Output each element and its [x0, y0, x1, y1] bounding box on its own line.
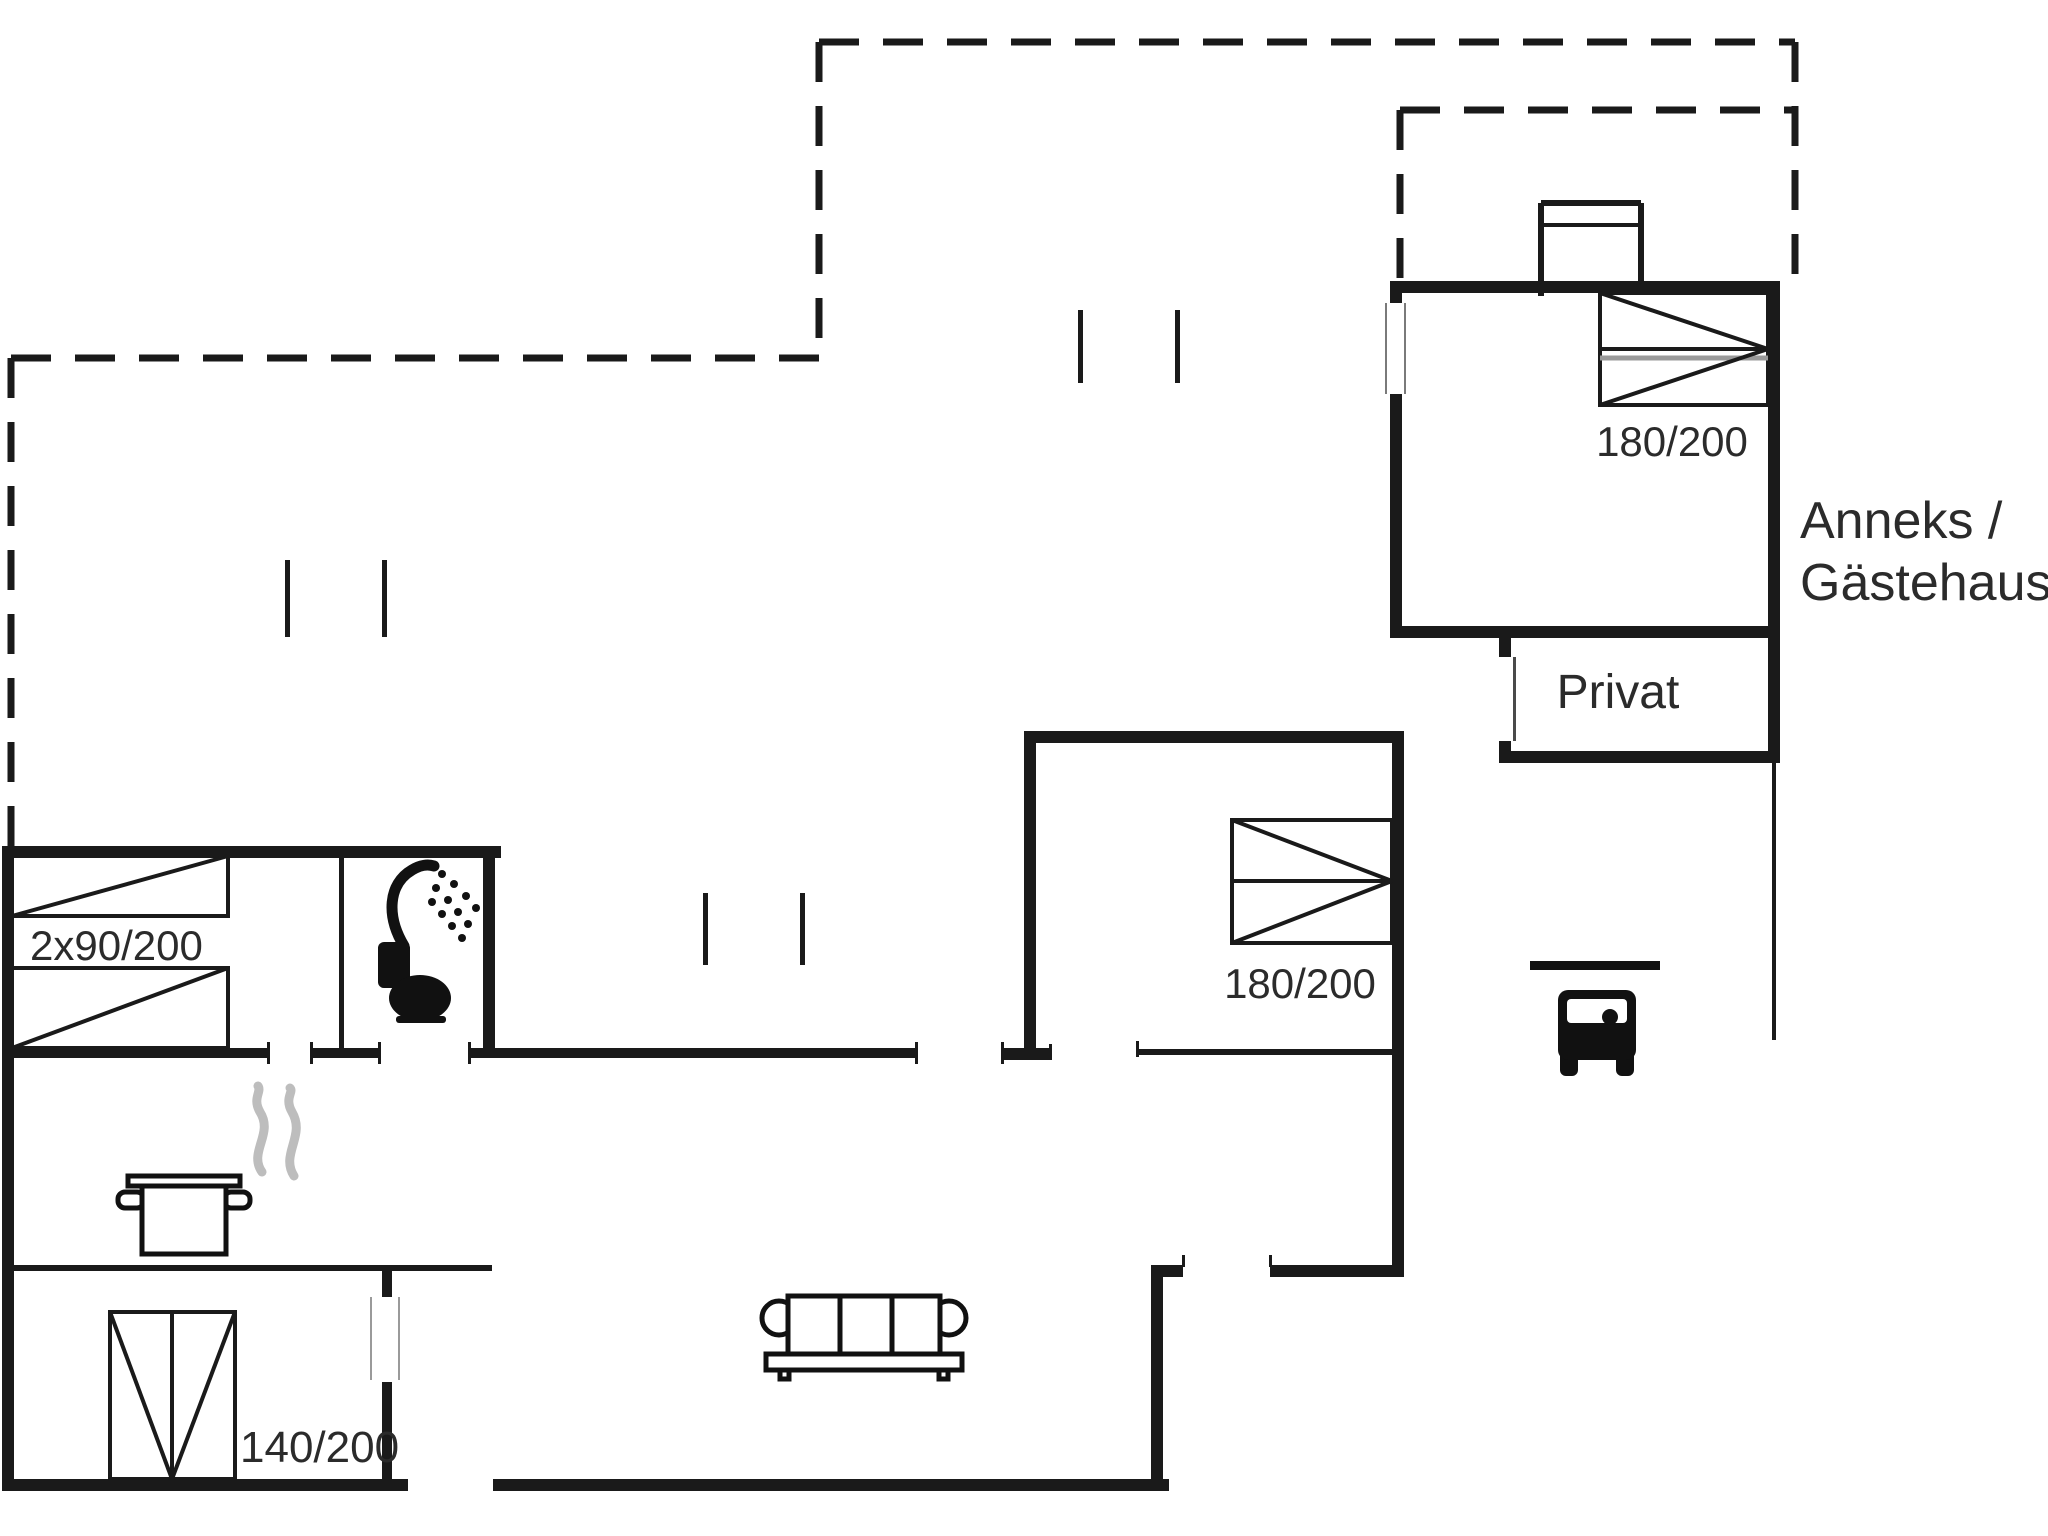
label-annex-caption-2: Gästehaus: [1800, 554, 2048, 612]
label-nw-beds: 2x90/200: [30, 922, 203, 969]
label-annex-caption-1: Anneks /: [1800, 492, 2003, 550]
car-icon: [1530, 961, 1660, 1076]
wall-interior-c: [470, 1048, 917, 1058]
plan-labels: 2x90/200 180/200 180/200 140/200 Privat …: [30, 418, 2048, 1472]
boundary-line-east: [1772, 763, 1776, 1040]
bed-symbol-annex-180: [1600, 293, 1768, 405]
wall-bedroom-south-thin: [1137, 1049, 1398, 1055]
sofa-icon: [762, 1296, 966, 1379]
label-sw-bed: 140/200: [240, 1423, 399, 1472]
carport-roof-line: [1530, 961, 1660, 970]
cooking-pot-icon: [118, 1176, 250, 1254]
shower-icon: [392, 865, 480, 946]
opening-tick: [1175, 310, 1180, 383]
steam-icon: [257, 1086, 296, 1176]
wall-bedroom-west-stub: [1003, 1048, 1050, 1060]
wall-swbedroom-door-stub: [382, 1271, 392, 1297]
wall-southeast-step: [1151, 1271, 1163, 1491]
wall-privat-west-stub-top: [1499, 632, 1511, 657]
wall-east: [1392, 731, 1404, 1277]
toilet-icon: [378, 942, 451, 1023]
opening-tick: [800, 893, 805, 965]
wall-bathroom-east: [483, 852, 495, 1058]
opening-tick: [1078, 310, 1083, 383]
wall-south-mid: [493, 1479, 1169, 1491]
opening-tick: [382, 560, 387, 637]
wall-east-door-stub: [1151, 1265, 1183, 1277]
wall-privat-south: [1499, 751, 1780, 763]
label-annex-bed: 180/200: [1596, 418, 1748, 465]
wall-bedroom-west: [1024, 731, 1036, 1053]
wall-bedroom-north: [1024, 731, 1404, 743]
opening-tick: [703, 893, 708, 965]
terrace-boundary-dashed: [11, 42, 1795, 850]
bed-symbol-main-180: [1232, 820, 1392, 943]
wall-east-door: [1270, 1265, 1404, 1277]
door-jambs: [267, 1041, 1272, 1267]
annex-window: [1385, 303, 1406, 394]
wall-annex-south: [1390, 626, 1780, 638]
wall-west: [2, 846, 14, 1491]
privat-door-jamb: [1513, 657, 1516, 741]
label-main-bed: 180/200: [1224, 960, 1376, 1007]
floor-plan-canvas: 2x90/200 180/200 180/200 140/200 Privat …: [0, 0, 2048, 1536]
wall-interior-b: [312, 1048, 380, 1058]
swbedroom-door-lines: [370, 1297, 400, 1380]
wall-bathroom-west-thin: [339, 852, 344, 1053]
label-privat: Privat: [1557, 666, 1680, 719]
opening-tick: [285, 560, 290, 637]
bed-symbol-sw-140: [110, 1312, 235, 1479]
floor-plan: 2x90/200 180/200 180/200 140/200 Privat …: [0, 0, 2048, 1536]
wall-kitchen-south-thin: [2, 1265, 492, 1271]
